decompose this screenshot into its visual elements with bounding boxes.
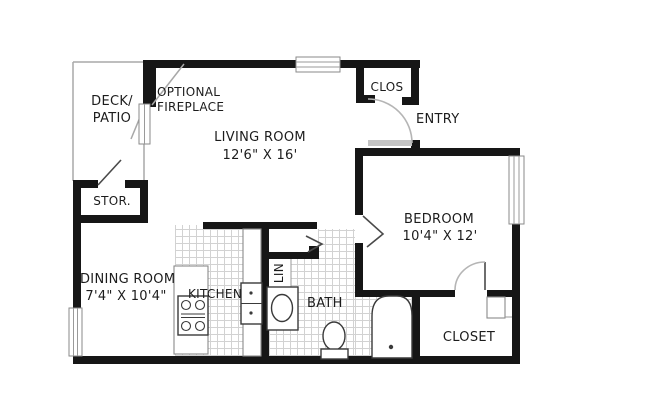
entry-door-swing-arc [368, 99, 412, 143]
dining-room-label: DINING ROOM [80, 273, 174, 287]
living-room-dimensions: 12'6" X 16' [205, 149, 315, 163]
wall-stor-bottom [73, 215, 148, 223]
toilet-tank [321, 349, 348, 359]
bedroom-label: BEDROOM [394, 213, 484, 227]
wall-bedroom-top [356, 148, 520, 156]
wall-top-left [143, 60, 297, 68]
wall-bottom [73, 356, 520, 364]
living-room-window [296, 57, 340, 72]
entry-door-leaf [368, 140, 412, 146]
bath-vanity-sink [272, 295, 293, 322]
floor-plan-geometry [0, 0, 650, 419]
hall-closet-label: CLOS [364, 80, 410, 94]
bedroom-dimensions: 10'4" X 12' [394, 230, 486, 244]
storage-label: STOR. [88, 194, 136, 208]
kitchen-sink-drain [249, 311, 252, 314]
wall-bedroom-left-upper [355, 148, 363, 215]
dining-room-dimensions: 7'4" X 10'4" [80, 290, 172, 304]
bedroom-window [509, 156, 524, 224]
bedroom-door-leaf [363, 216, 383, 247]
floor-plan: OPTIONAL FIREPLACE DECK/ PATIO LIVING RO… [0, 0, 650, 419]
dining-room-window [69, 308, 82, 356]
wall-clos-left [356, 68, 364, 95]
wall-bath-closet-divider [412, 290, 420, 356]
wall-stor-right [140, 180, 148, 223]
optional-fireplace-label-line2: FIREPLACE [157, 100, 224, 114]
wall-bedroom-bottom-left [355, 290, 455, 297]
kitchen-label: KITCHEN [188, 287, 242, 301]
kitchen-sink-drain [249, 291, 252, 294]
living-room-label: LIVING ROOM [205, 131, 315, 145]
wall-clos-right-foot [402, 97, 419, 105]
bath-label: BATH [307, 297, 343, 311]
wall-clos-right [411, 68, 419, 97]
entry-label: ENTRY [416, 113, 460, 127]
wall-bedroom-bottom-right [487, 290, 520, 297]
linen-closet-label: LIN [272, 257, 286, 289]
toilet-bowl [323, 322, 345, 350]
deck-patio-label-line1: DECK/ [88, 95, 136, 109]
closet-shelf [487, 297, 505, 318]
wall-bedroom-left-lower [355, 243, 363, 297]
wall-top-right [339, 60, 420, 68]
bathtub-drain [389, 345, 393, 349]
storage-door-leaf [98, 160, 121, 185]
optional-fireplace-label-line1: OPTIONAL [157, 85, 220, 99]
bedroom-closet-label: CLOSET [438, 331, 500, 345]
wall-kitchen-top [203, 222, 317, 229]
bedroom-closet-door-swing-arc [455, 262, 485, 290]
deck-patio-label-line2: PATIO [88, 112, 136, 126]
wall-fireplace-corner [143, 60, 156, 107]
